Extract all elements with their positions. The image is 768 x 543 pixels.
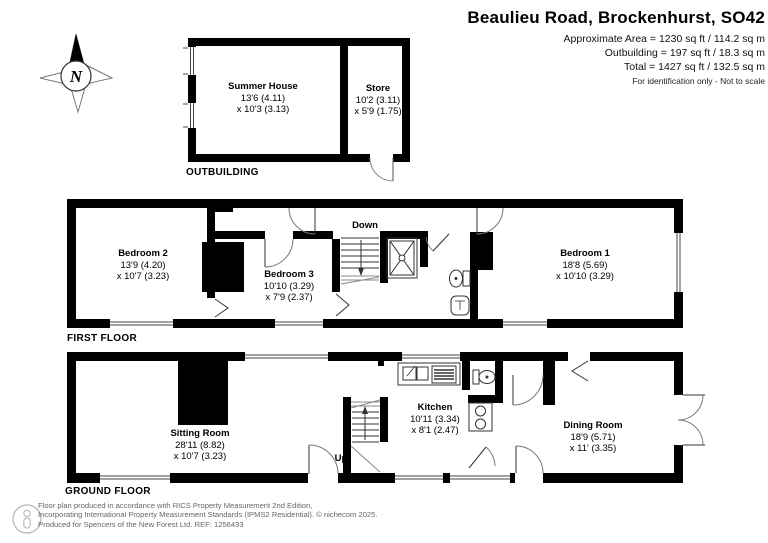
footer-line-1: Floor plan produced in accordance with R… (38, 501, 377, 510)
room-label-kitchen: Kitchen 10'11 (3.34) x 8'1 (2.47) (375, 402, 495, 437)
room-label-sitting-room: Sitting Room 28'11 (8.82) x 10'7 (3.23) (140, 428, 260, 463)
room-label-bedroom-1: Bedroom 1 18'8 (5.69) x 10'10 (3.29) (525, 248, 645, 283)
outbuilding-section-label: OUTBUILDING (186, 167, 259, 178)
stairs-down-label: Down (345, 220, 385, 231)
ground-floor-section-label: GROUND FLOOR (65, 486, 151, 497)
outbuilding-area-line: Outbuilding = 197 sq ft / 18.3 sq m (467, 46, 765, 60)
room-label-dining-room: Dining Room 18'9 (5.71) x 11' (3.35) (533, 420, 653, 455)
room-label-bedroom-2: Bedroom 2 13'9 (4.20) x 10'7 (3.23) (83, 248, 203, 283)
kitchen-sink-icon (398, 363, 460, 385)
compass-north-label: N (69, 67, 83, 86)
stairs-up-label: Up (323, 453, 359, 464)
wc-toilet-icon (473, 370, 495, 384)
header: Beaulieu Road, Brockenhurst, SO42 Approx… (467, 8, 765, 86)
footer-line-3: Produced for Spencers of the New Forest … (38, 520, 377, 529)
page-title: Beaulieu Road, Brockenhurst, SO42 (467, 8, 765, 28)
toilet-icon (450, 270, 471, 287)
room-label-bedroom-3: Bedroom 3 10'10 (3.29) x 7'9 (2.37) (229, 269, 349, 304)
footer-line-2: Incorporating International Property Mea… (38, 510, 377, 519)
store-door (370, 154, 393, 181)
room-label-summer-house: Summer House 13'6 (4.11) x 10'3 (3.13) (203, 81, 323, 116)
compass-rose: N (34, 28, 118, 114)
sink-icon (451, 296, 469, 315)
footer-disclaimer: Floor plan produced in accordance with R… (38, 501, 377, 529)
first-floor-section-label: FIRST FLOOR (67, 333, 137, 344)
room-label-store: Store 10'2 (3.11) x 5'9 (1.75) (338, 83, 418, 118)
shower-icon (387, 238, 417, 278)
approximate-area-line: Approximate Area = 1230 sq ft / 114.2 sq… (467, 32, 765, 46)
disclaimer-text: For identification only - Not to scale (467, 76, 765, 86)
floorplan-page: Beaulieu Road, Brockenhurst, SO42 Approx… (0, 0, 768, 543)
total-area-line: Total = 1427 sq ft / 132.5 sq m (467, 60, 765, 74)
